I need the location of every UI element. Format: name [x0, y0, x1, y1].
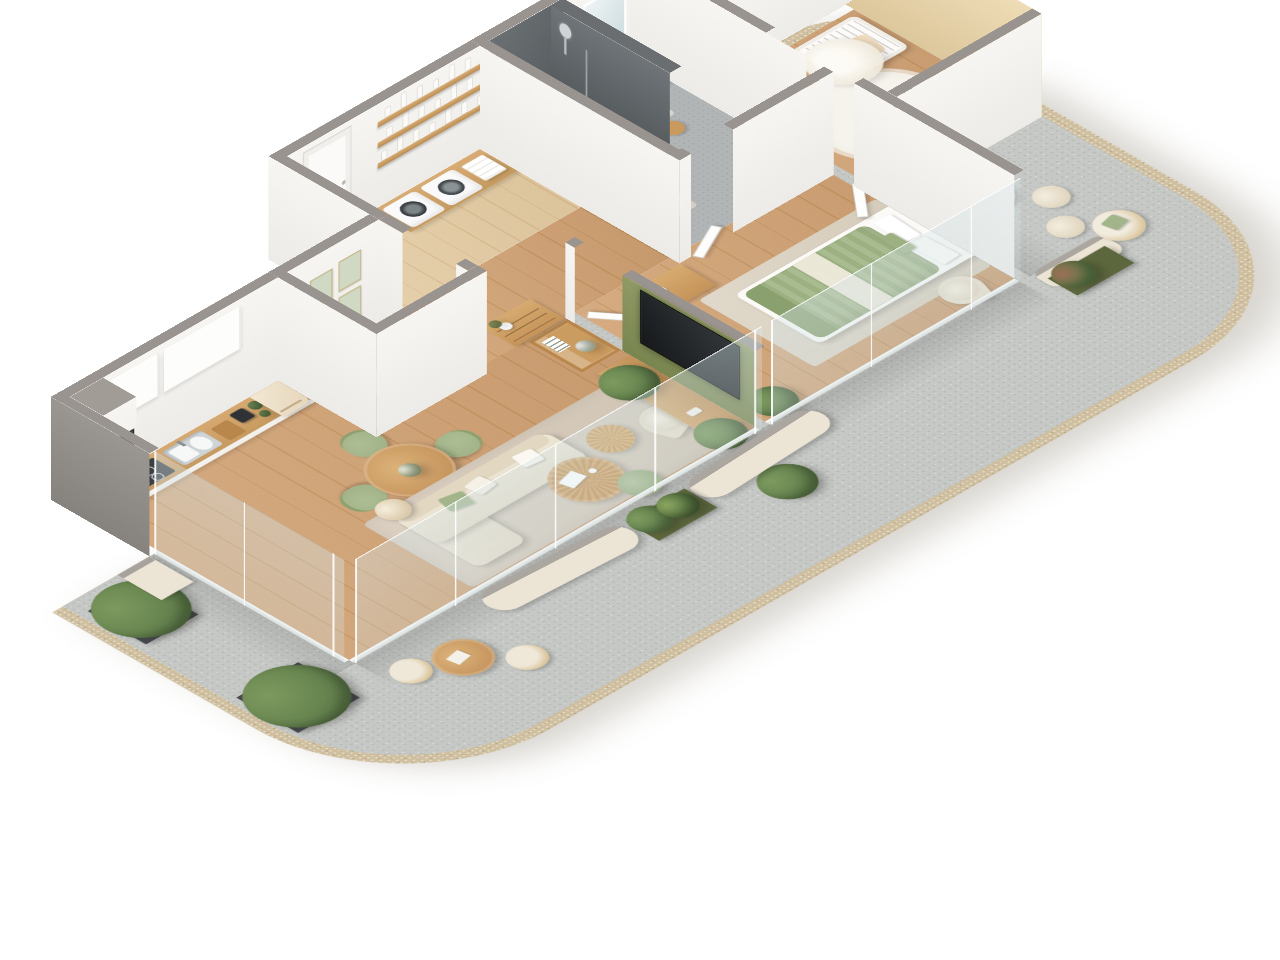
- floorplan-render: [0, 0, 1280, 960]
- wall-face-partition-north-stub: [565, 242, 575, 323]
- wall-face-bath-south-a: [679, 154, 691, 264]
- shower-arm-icon: [564, 36, 566, 55]
